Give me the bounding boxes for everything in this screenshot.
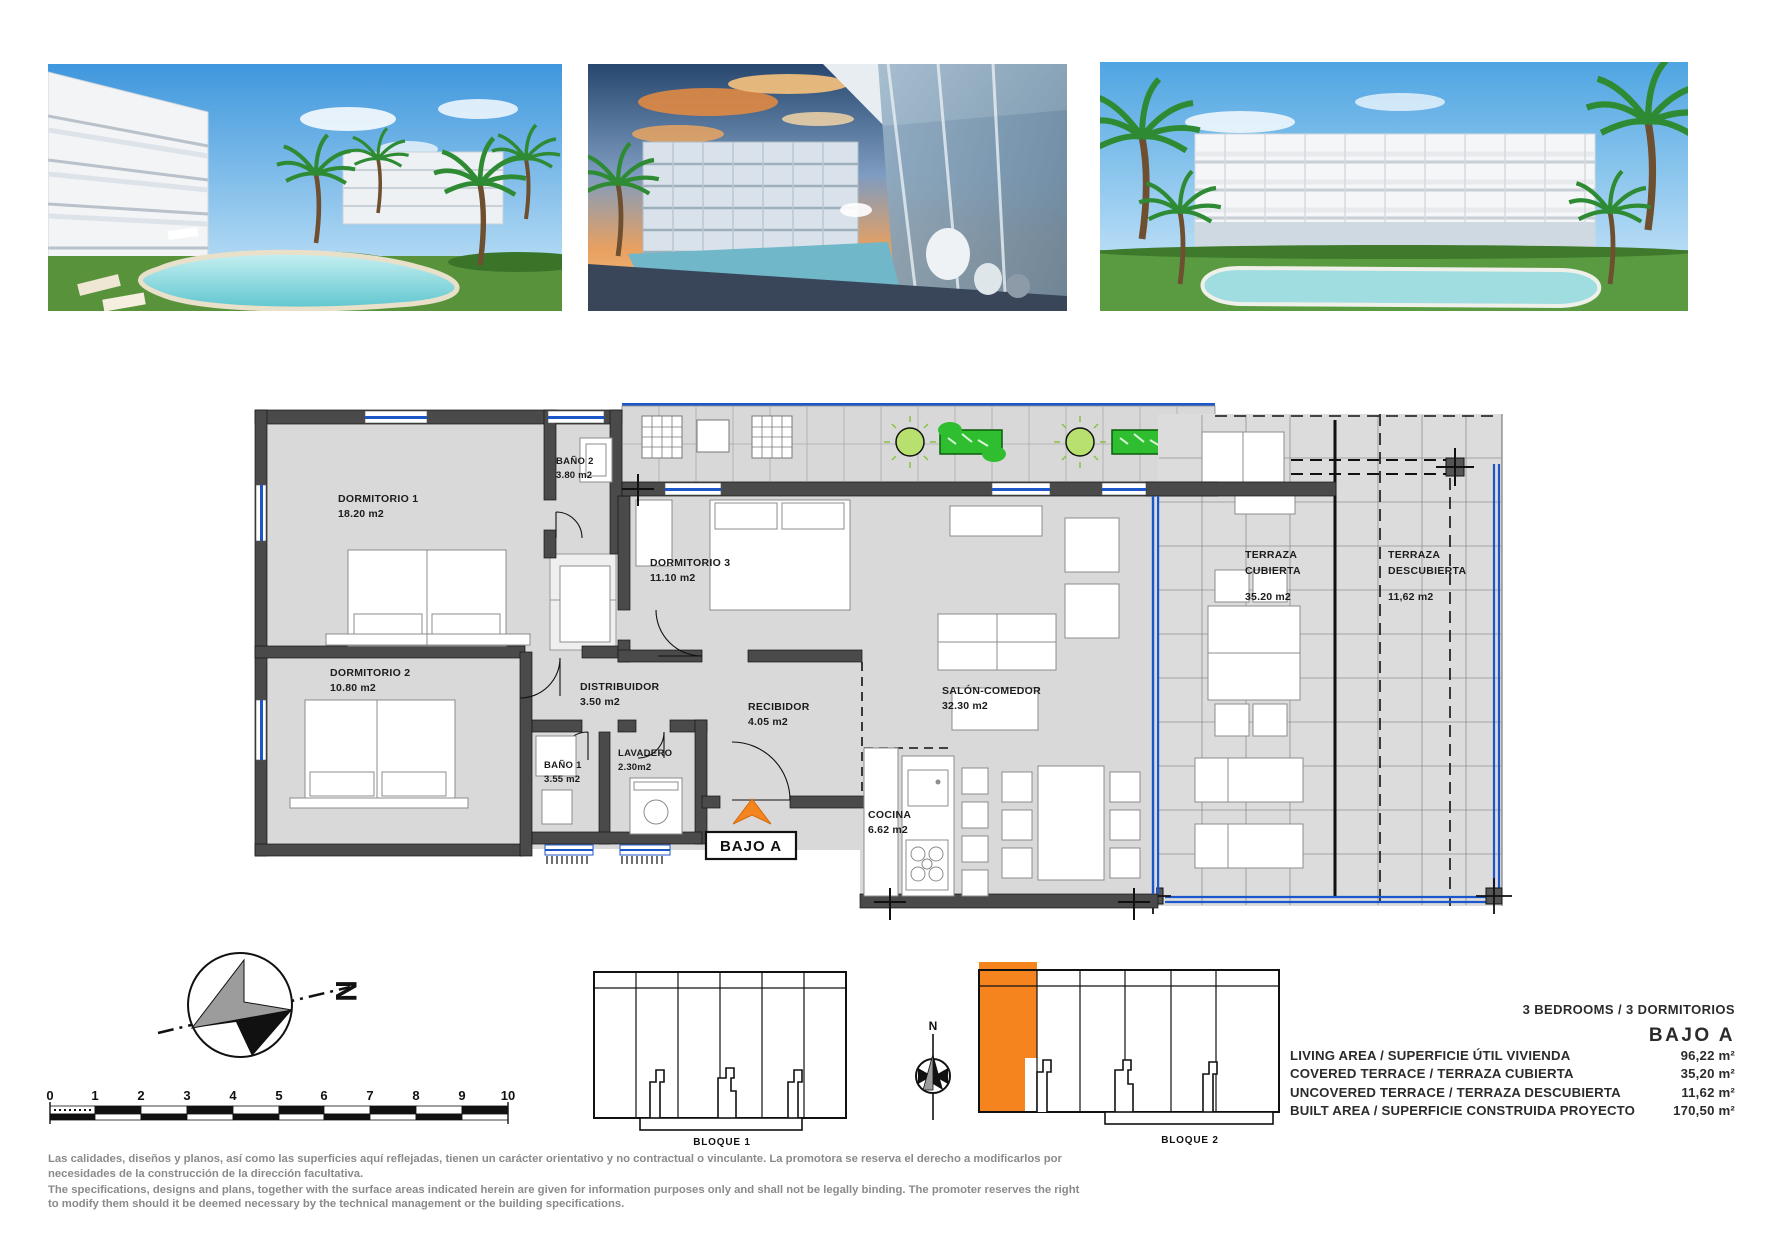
svg-text:1: 1	[91, 1088, 98, 1103]
north-compass: N	[140, 915, 380, 1085]
render-photo-facade-day	[1100, 62, 1688, 311]
scale-numbers: 0 1 2 3 4 5 6 7 8 9 10	[46, 1088, 515, 1103]
walkway	[622, 403, 1215, 482]
svg-text:DORMITORIO 2: DORMITORIO 2	[330, 667, 410, 679]
svg-text:3.55 m2: 3.55 m2	[544, 774, 580, 785]
svg-text:10: 10	[501, 1088, 515, 1103]
svg-text:32.30 m2: 32.30 m2	[942, 700, 988, 712]
svg-text:DESCUBIERTA: DESCUBIERTA	[1388, 565, 1466, 577]
spec-row: BUILT AREA / SUPERFICIE CONSTRUIDA PROYE…	[1290, 1102, 1735, 1120]
north-letter: N	[329, 980, 362, 1002]
unit-specs: 3 BEDROOMS / 3 DORMITORIOS BAJO A LIVING…	[1290, 1002, 1735, 1121]
unit-label: BAJO A	[720, 838, 782, 855]
floor-plan: BAJO A DORMITORIO 118.20 m2 BAÑO 23.80 m…	[250, 400, 1520, 920]
spec-value: 35,20 m²	[1681, 1065, 1735, 1083]
svg-text:TERRAZA: TERRAZA	[1245, 549, 1297, 561]
svg-text:BAÑO 1: BAÑO 1	[544, 760, 582, 771]
svg-text:BAÑO 2: BAÑO 2	[556, 456, 594, 467]
unit-label-box: BAJO A	[706, 832, 796, 859]
svg-text:6.62 m2: 6.62 m2	[868, 824, 908, 836]
svg-text:TERRAZA: TERRAZA	[1388, 549, 1440, 561]
svg-text:4.05 m2: 4.05 m2	[748, 716, 788, 728]
unit-title: BAJO A	[1290, 1025, 1735, 1047]
spec-value: 96,22 m²	[1681, 1047, 1735, 1065]
render-photo-sunset-terrace	[588, 64, 1067, 311]
spec-row: COVERED TERRACE / TERRAZA CUBIERTA 35,20…	[1290, 1065, 1735, 1083]
svg-text:2: 2	[137, 1088, 144, 1103]
svg-text:DORMITORIO 3: DORMITORIO 3	[650, 557, 730, 569]
small-north-compass: N	[905, 1016, 965, 1134]
svg-text:35.20 m2: 35.20 m2	[1245, 591, 1291, 603]
small-north-letter: N	[929, 1019, 938, 1033]
svg-text:18.20 m2: 18.20 m2	[338, 508, 384, 520]
svg-text:COCINA: COCINA	[868, 809, 911, 821]
brochure-page: BAJO A DORMITORIO 118.20 m2 BAÑO 23.80 m…	[0, 0, 1778, 1249]
svg-text:RECIBIDOR: RECIBIDOR	[748, 701, 810, 713]
block-1-diagram: BLOQUE 1	[592, 968, 854, 1150]
disclaimer-es: Las calidades, diseños y planos, así com…	[48, 1152, 1088, 1182]
spec-label: COVERED TERRACE / TERRAZA CUBIERTA	[1290, 1065, 1574, 1083]
spec-value: 11,62 m²	[1681, 1084, 1735, 1102]
svg-text:DORMITORIO 1: DORMITORIO 1	[338, 493, 418, 505]
svg-text:LAVADERO: LAVADERO	[618, 748, 672, 759]
svg-text:9: 9	[458, 1088, 465, 1103]
legal-disclaimer: Las calidades, diseños y planos, así com…	[48, 1152, 1088, 1213]
svg-text:0: 0	[46, 1088, 53, 1103]
svg-text:8: 8	[412, 1088, 419, 1103]
block-2-diagram: BLOQUE 2	[975, 962, 1289, 1150]
svg-text:7: 7	[366, 1088, 373, 1103]
svg-text:5: 5	[275, 1088, 282, 1103]
spec-row: LIVING AREA / SUPERFICIE ÚTIL VIVIENDA 9…	[1290, 1047, 1735, 1065]
spec-label: LIVING AREA / SUPERFICIE ÚTIL VIVIENDA	[1290, 1047, 1570, 1065]
svg-text:4: 4	[229, 1088, 237, 1103]
svg-text:2.30m2: 2.30m2	[618, 762, 651, 773]
scale-bar: 0 1 2 3 4 5 6 7 8 9 10	[42, 1086, 520, 1134]
svg-text:11,62 m2: 11,62 m2	[1388, 591, 1433, 603]
disclaimer-en: The specifications, designs and plans, t…	[48, 1183, 1088, 1213]
block-1-label: BLOQUE 1	[693, 1137, 751, 1148]
svg-text:6: 6	[320, 1088, 327, 1103]
svg-text:SALÓN-COMEDOR: SALÓN-COMEDOR	[942, 684, 1041, 697]
spec-label: UNCOVERED TERRACE / TERRAZA DESCUBIERTA	[1290, 1084, 1621, 1102]
highlighted-unit	[979, 970, 1037, 1112]
svg-text:CUBIERTA: CUBIERTA	[1245, 565, 1301, 577]
block-2-label: BLOQUE 2	[1161, 1135, 1219, 1146]
svg-text:DISTRIBUIDOR: DISTRIBUIDOR	[580, 681, 660, 693]
spec-label: BUILT AREA / SUPERFICIE CONSTRUIDA PROYE…	[1290, 1102, 1635, 1120]
svg-text:10.80 m2: 10.80 m2	[330, 682, 376, 694]
spec-row: UNCOVERED TERRACE / TERRAZA DESCUBIERTA …	[1290, 1084, 1735, 1102]
svg-text:3.80 m2: 3.80 m2	[556, 470, 592, 481]
svg-text:3.50 m2: 3.50 m2	[580, 696, 620, 708]
svg-text:11.10 m2: 11.10 m2	[650, 572, 695, 584]
svg-text:3: 3	[183, 1088, 190, 1103]
spec-value: 170,50 m²	[1673, 1102, 1735, 1120]
render-photo-pool-day	[48, 64, 562, 311]
bedrooms-header: 3 BEDROOMS / 3 DORMITORIOS	[1290, 1002, 1735, 1017]
